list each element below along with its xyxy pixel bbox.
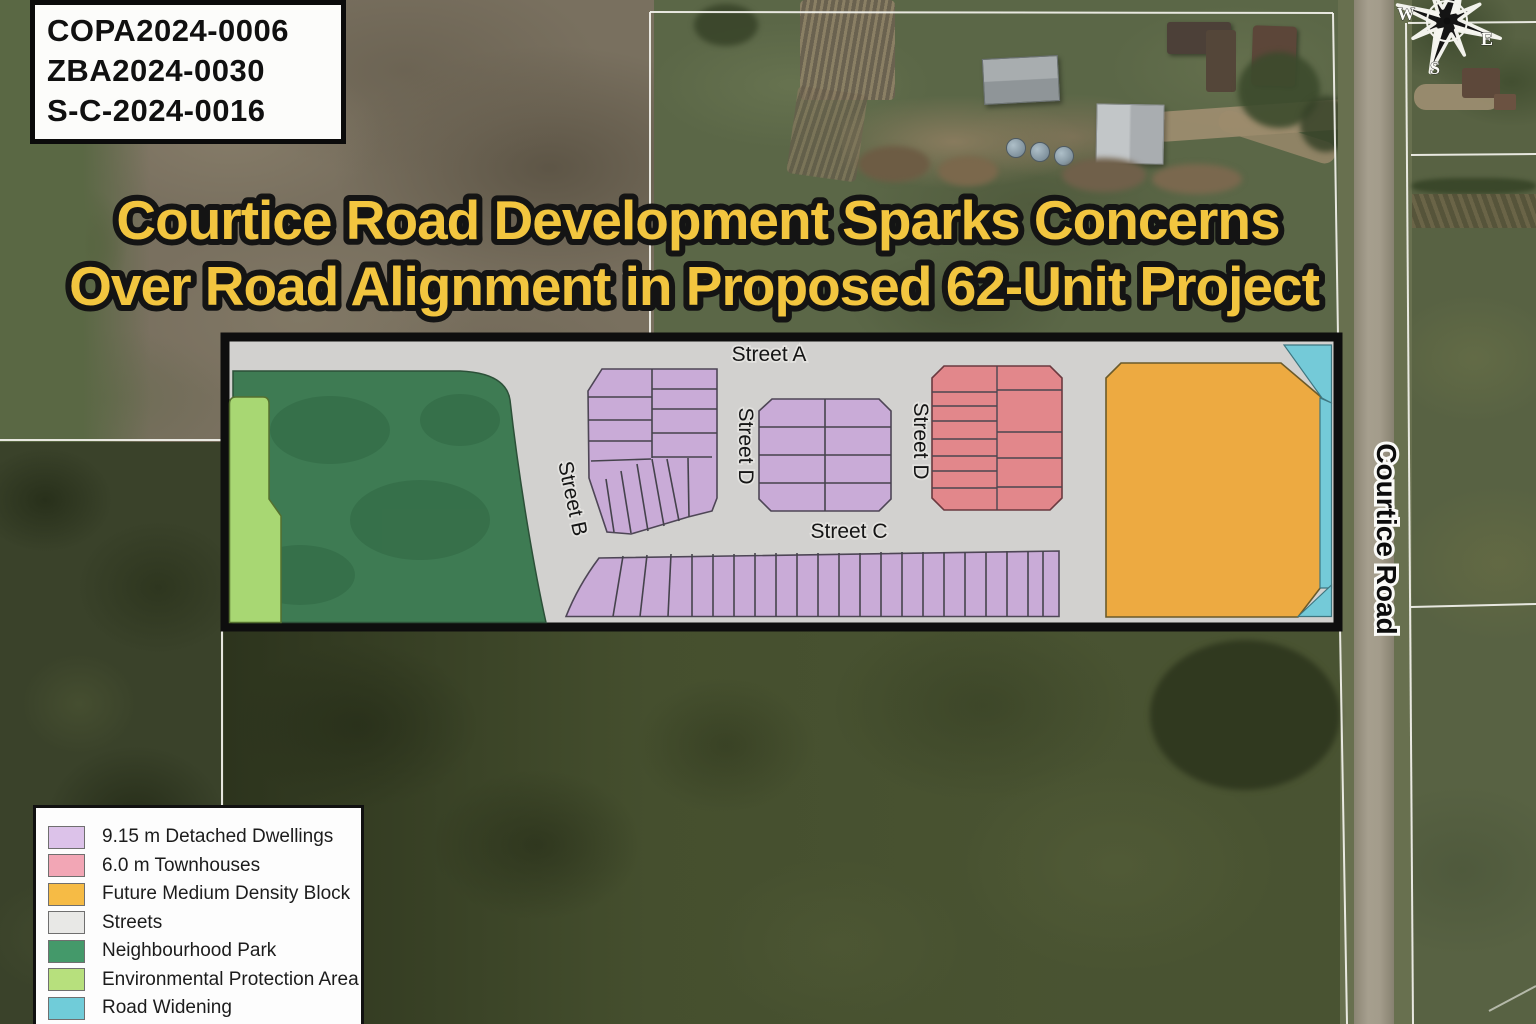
lot-lines-central (759, 399, 891, 511)
legend-swatch-detached (48, 826, 85, 849)
lot-lines-townhouses (932, 366, 1062, 510)
street-d-left-label: Street D (734, 407, 757, 484)
application-number-copa: COPA2024-0006 (47, 11, 325, 51)
legend-label: 9.15 m Detached Dwellings (102, 826, 333, 848)
legend-label: Environmental Protection Area (102, 969, 359, 991)
legend-swatch-streets (48, 911, 85, 934)
lot-lines-south (613, 551, 1043, 617)
legend-swatch-road-widening (48, 997, 85, 1020)
legend-swatch-townhouses (48, 854, 85, 877)
legend-item-streets: Streets (48, 909, 361, 938)
legend: 9.15 m Detached Dwellings 6.0 m Townhous… (33, 805, 364, 1024)
tree-cluster-south (1150, 640, 1340, 790)
street-d-right-label: Street D (909, 402, 932, 479)
barn-building-2 (1095, 103, 1164, 164)
farm-house-wing (1206, 30, 1236, 92)
east-shed (1494, 94, 1516, 110)
storage-tank (1030, 142, 1050, 162)
future-medium-density-block (1106, 363, 1321, 617)
storage-tank (1006, 138, 1026, 158)
debris-pile (1062, 158, 1146, 192)
application-number-sc: S-C-2024-0016 (47, 91, 325, 131)
flyer-canvas: Street A Street B Street C Street D Stre… (0, 0, 1536, 1024)
detached-dwellings-south-row (566, 551, 1059, 617)
legend-swatch-environmental (48, 968, 85, 991)
legend-label: Streets (102, 912, 162, 934)
legend-item-park: Neighbourhood Park (48, 937, 361, 966)
street-b-label: Street B (553, 459, 591, 538)
east-treeline (1412, 178, 1536, 194)
debris-pile (938, 156, 998, 186)
townhouses-block (932, 366, 1062, 510)
application-number-zba: ZBA2024-0030 (47, 51, 325, 91)
street-c-label: Street C (810, 520, 887, 543)
legend-swatch-park (48, 940, 85, 963)
street-a-label: Street A (732, 343, 807, 366)
tree-cluster (694, 4, 758, 46)
east-furrow-strip (1412, 194, 1536, 228)
road-pavement (1354, 0, 1394, 1024)
legend-item-medium-density: Future Medium Density Block (48, 880, 361, 909)
legend-label: 6.0 m Townhouses (102, 855, 260, 877)
application-numbers-box: COPA2024-0006 ZBA2024-0030 S-C-2024-0016 (30, 0, 346, 144)
legend-swatch-medium-density (48, 883, 85, 906)
debris-pile (858, 146, 930, 182)
legend-label: Neighbourhood Park (102, 940, 276, 962)
legend-item-detached: 9.15 m Detached Dwellings (48, 823, 361, 852)
detached-dwellings-central-block (759, 399, 891, 511)
east-fields (1412, 0, 1536, 1024)
legend-item-environmental: Environmental Protection Area (48, 966, 361, 995)
courtice-road-corridor (1338, 0, 1412, 1024)
barn-building (982, 55, 1060, 105)
debris-pile (1152, 164, 1242, 194)
crop-rows (800, 0, 895, 100)
legend-item-townhouses: 6.0 m Townhouses (48, 852, 361, 881)
legend-label: Future Medium Density Block (102, 883, 350, 905)
legend-label: Road Widening (102, 997, 232, 1019)
legend-item-road-widening: Road Widening (48, 994, 361, 1023)
road-widening-strip (1284, 345, 1332, 617)
